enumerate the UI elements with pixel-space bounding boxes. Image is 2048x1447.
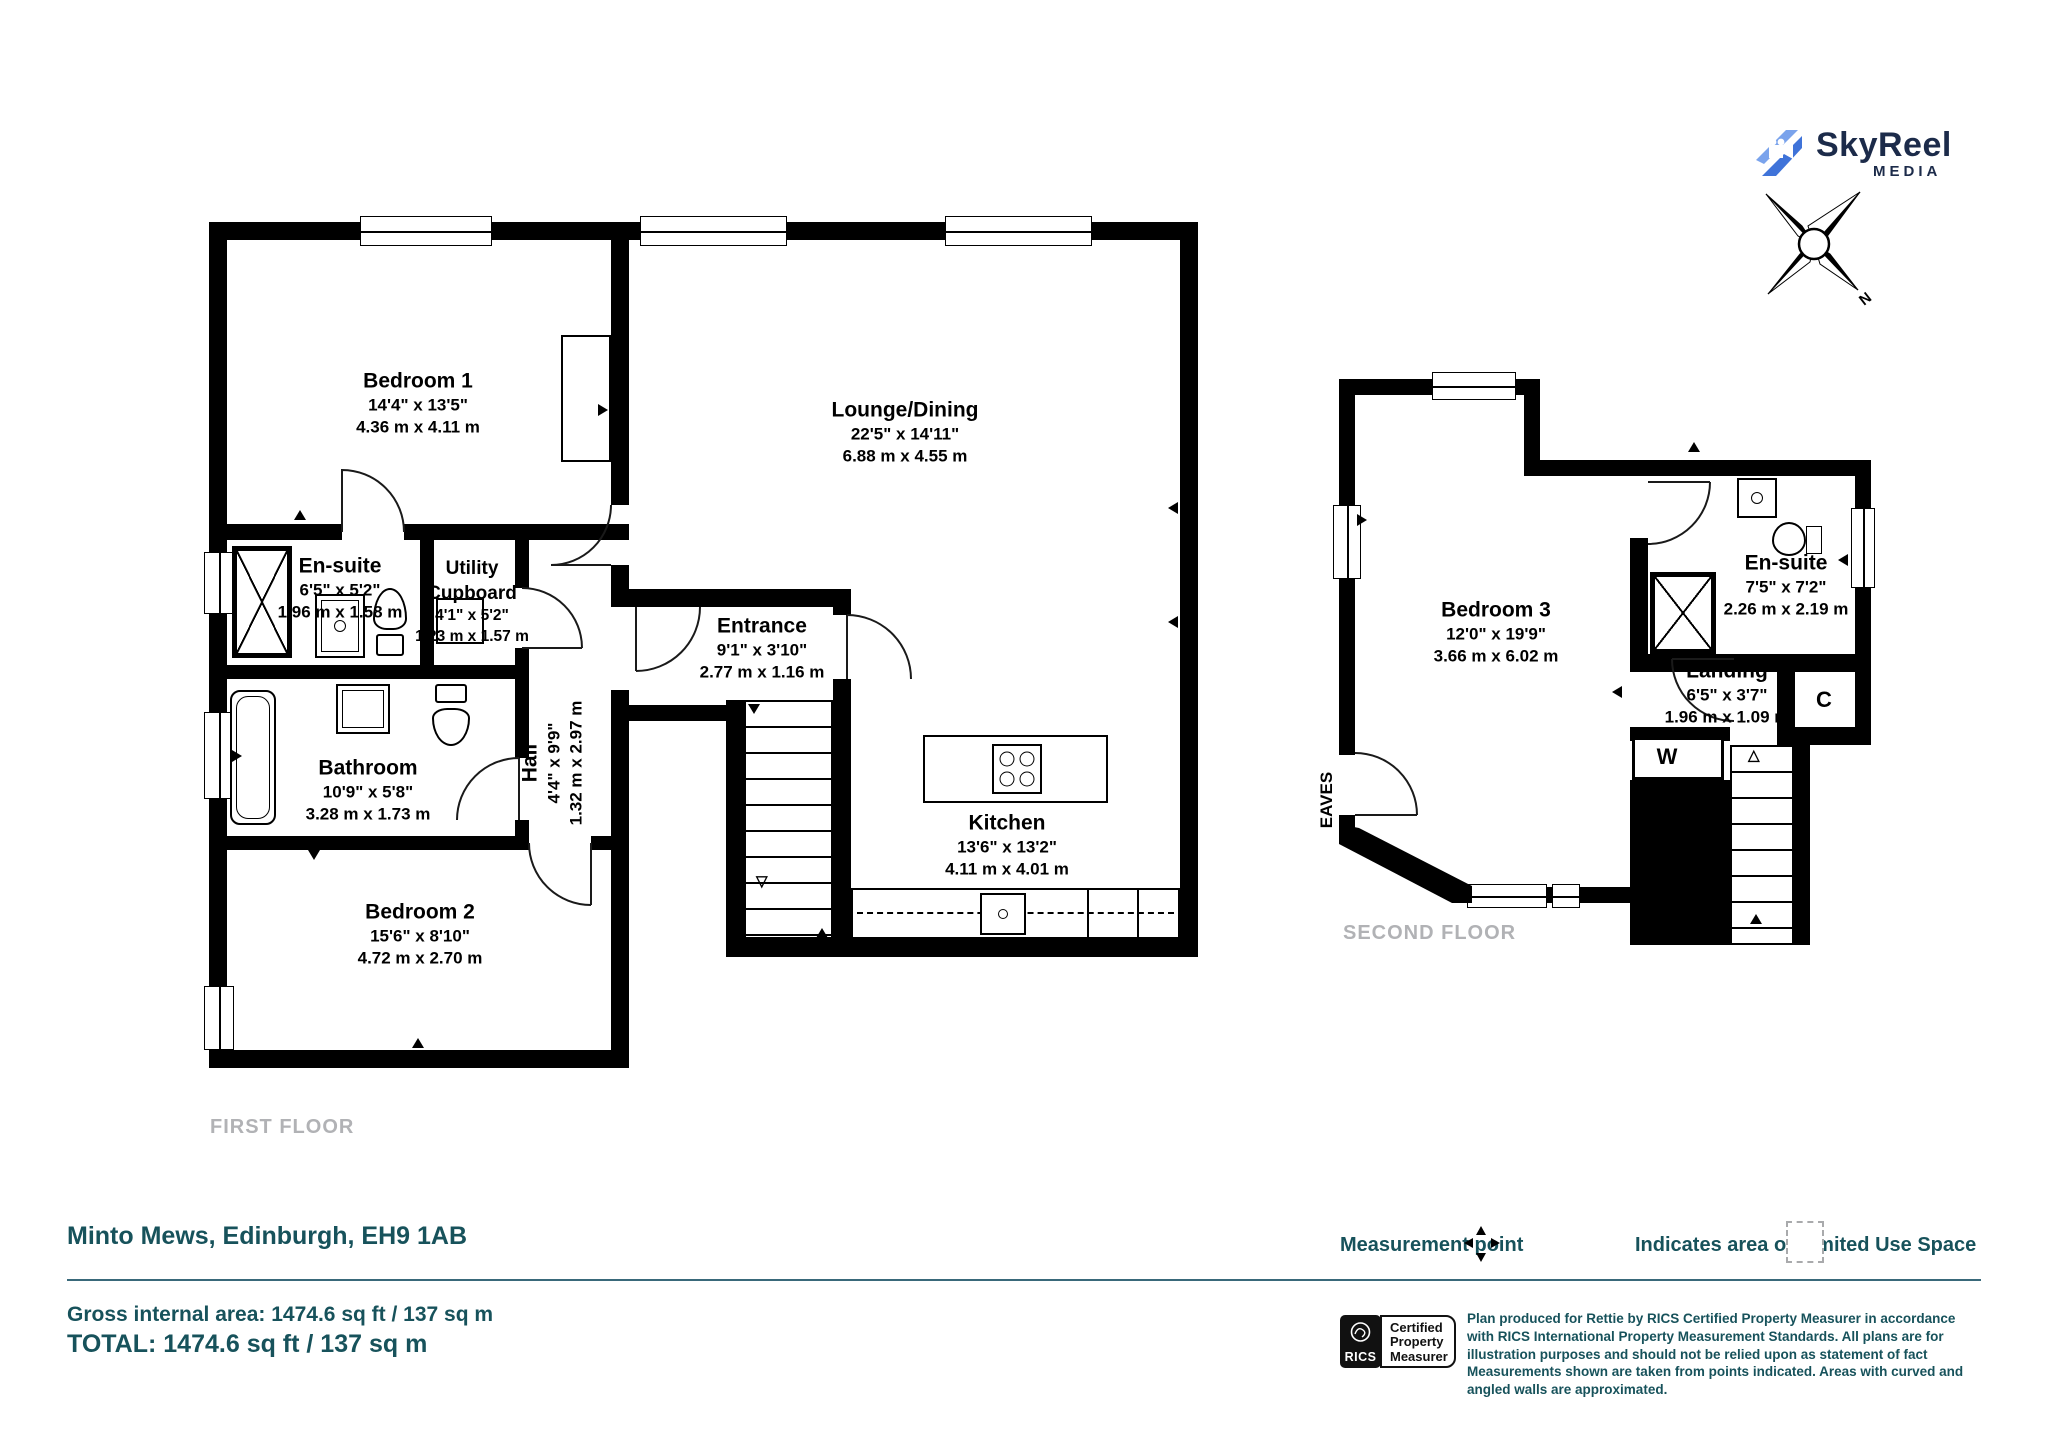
room-dim-imperial: 4'1" x 5'2" xyxy=(415,607,529,627)
room-label-hall: Hall 4'4" x 9'9" 1.32 m x 2.97 m xyxy=(516,701,587,826)
room-dim-imperial: 12'0" x 19'9" xyxy=(1434,624,1559,646)
wall xyxy=(591,836,629,850)
room-label-bedroom1: Bedroom 1 14'4" x 13'5" 4.36 m x 4.11 m xyxy=(356,367,480,438)
room-dim-metric: 1.23 m x 1.57 m xyxy=(415,627,529,647)
wall xyxy=(833,589,851,615)
wall xyxy=(1339,815,1355,838)
measurement-arrow xyxy=(816,928,828,938)
window xyxy=(1552,884,1580,908)
room-label-bedroom2: Bedroom 2 15'6" x 8'10" 4.72 m x 2.70 m xyxy=(358,898,483,969)
wall xyxy=(611,565,629,607)
measurement-arrow xyxy=(1168,502,1178,514)
stairs-direction-marker: ▽ xyxy=(756,872,768,890)
wall xyxy=(726,700,744,939)
wall xyxy=(515,648,529,665)
room-label-bedroom3: Bedroom 3 12'0" x 19'9" 3.66 m x 6.02 m xyxy=(1434,596,1559,667)
logo-title: SkyReel xyxy=(1816,126,1952,165)
measurement-arrow xyxy=(1750,914,1762,924)
room-name: En-suite xyxy=(1724,549,1849,576)
toilet-icon xyxy=(430,684,472,746)
room-dim-imperial: 15'6" x 8'10" xyxy=(358,926,483,948)
room-dim-imperial: 6'5" x 5'2" xyxy=(278,580,403,602)
property-address: Minto Mews, Edinburgh, EH9 1AB xyxy=(67,1222,467,1251)
sink-icon xyxy=(1737,478,1777,518)
room-dim-imperial: 10'9" x 5'8" xyxy=(306,782,431,804)
certified-property-measurer-badge: Certified Property Measurer xyxy=(1380,1315,1456,1368)
compass-north-label: N xyxy=(1856,289,1875,309)
wall xyxy=(611,240,629,505)
measurement-arrow xyxy=(748,704,760,714)
measurement-arrow xyxy=(232,750,242,762)
room-dim-imperial: 4'4" x 9'9" xyxy=(544,701,566,826)
footer-divider xyxy=(67,1279,1981,1281)
stairs-direction-marker: △ xyxy=(1748,746,1760,764)
room-dim-metric: 1.96 m x 1.58 m xyxy=(278,602,403,624)
gross-internal-area: Gross internal area: 1474.6 sq ft / 137 … xyxy=(67,1303,493,1327)
disclaimer-text: Plan produced for Rettie by RICS Certifi… xyxy=(1467,1310,1982,1399)
measurement-arrow xyxy=(412,1038,424,1048)
first-floor-label: FIRST FLOOR xyxy=(210,1116,354,1139)
room-dim-metric: 2.77 m x 1.16 m xyxy=(700,662,825,684)
room-name: En-suite xyxy=(278,552,403,579)
wall xyxy=(1630,538,1648,672)
room-name: Utility xyxy=(415,557,529,582)
four-way-arrows-icon xyxy=(1468,1224,1496,1264)
room-name: Bedroom 2 xyxy=(358,898,483,925)
window xyxy=(204,986,234,1050)
room-name: Bedroom 3 xyxy=(1434,596,1559,623)
kitchen-counter xyxy=(851,888,1180,939)
wall xyxy=(227,836,529,850)
dashed-square-swatch xyxy=(1786,1221,1824,1263)
room-dim-imperial: 6'5" x 3'7" xyxy=(1665,685,1790,707)
room-name: Kitchen xyxy=(945,809,1069,836)
room-dim-metric: 1.96 m x 1.09 m xyxy=(1665,707,1790,729)
kitchen-island xyxy=(923,735,1108,803)
cert-line: Property xyxy=(1390,1335,1454,1349)
room-label-bathroom: Bathroom 10'9" x 5'8" 3.28 m x 1.73 m xyxy=(306,754,431,825)
wall xyxy=(1180,222,1198,957)
room-label-lounge: Lounge/Dining 22'5" x 14'11" 6.88 m x 4.… xyxy=(832,396,979,467)
wardrobe-unit xyxy=(561,335,611,462)
room-dim-imperial: 9'1" x 3'10" xyxy=(700,640,825,662)
room-name: Hall xyxy=(516,701,543,826)
eaves-label: EAVES xyxy=(1316,772,1338,828)
window xyxy=(204,552,234,614)
hob-icon xyxy=(992,744,1042,794)
room-dim-metric: 2.26 m x 2.19 m xyxy=(1724,599,1849,621)
wall xyxy=(1630,780,1730,945)
room-dim-metric: 4.72 m x 2.70 m xyxy=(358,948,483,970)
floorplan-page: SkyReel MEDIA N xyxy=(0,0,2048,1447)
wall xyxy=(629,705,744,721)
room-name: Landing xyxy=(1665,657,1790,684)
room-dim-metric: 4.36 m x 4.11 m xyxy=(356,417,480,439)
room-label-kitchen: Kitchen 13'6" x 13'2" 4.11 m x 4.01 m xyxy=(945,809,1069,880)
room-name: Entrance xyxy=(700,612,825,639)
compass-rose-icon: N xyxy=(1742,182,1892,312)
room-dim-imperial: 14'4" x 13'5" xyxy=(356,395,480,417)
window xyxy=(1851,508,1875,588)
measurement-arrow xyxy=(1168,616,1178,628)
measurement-arrow xyxy=(598,404,608,416)
room-dim-metric: 3.66 m x 6.02 m xyxy=(1434,646,1559,668)
wardrobe-label: W xyxy=(1657,744,1678,770)
kitchen-sink-icon xyxy=(980,893,1026,935)
sink-icon xyxy=(336,684,390,734)
window xyxy=(1432,372,1516,400)
room-label-ensuite-2f: En-suite 7'5" x 7'2" 2.26 m x 2.19 m xyxy=(1724,549,1849,620)
cupboard-label: C xyxy=(1816,687,1832,713)
window xyxy=(1467,884,1547,908)
window xyxy=(945,216,1092,246)
staircase xyxy=(744,700,833,939)
room-dim-metric: 3.28 m x 1.73 m xyxy=(306,804,431,826)
room-name: Cupboard xyxy=(415,582,529,607)
wall xyxy=(611,690,629,836)
wall xyxy=(1777,727,1871,745)
room-dim-metric: 1.32 m x 2.97 m xyxy=(566,701,588,826)
wall xyxy=(209,222,227,1068)
window xyxy=(360,216,492,246)
wall xyxy=(1524,460,1871,476)
wall xyxy=(227,524,342,540)
wall xyxy=(611,850,629,1068)
room-name: Bathroom xyxy=(306,754,431,781)
cert-line: Measurer xyxy=(1390,1350,1454,1364)
rics-lion-icon: RICS xyxy=(1340,1315,1381,1368)
counter-divider xyxy=(1137,890,1139,937)
room-label-utility: Utility Cupboard 4'1" x 5'2" 1.23 m x 1.… xyxy=(415,557,529,647)
room-name: Bedroom 1 xyxy=(356,367,480,394)
wardrobe-unit xyxy=(1632,737,1724,780)
staircase xyxy=(1730,745,1794,945)
room-name: Lounge/Dining xyxy=(832,396,979,423)
wall xyxy=(1794,745,1810,945)
second-floor-label: SECOND FLOOR xyxy=(1343,922,1516,945)
room-dim-metric: 4.11 m x 4.01 m xyxy=(945,859,1069,881)
room-label-ensuite-1f: En-suite 6'5" x 5'2" 1.96 m x 1.58 m xyxy=(278,552,403,623)
measurement-arrow xyxy=(1357,514,1367,526)
measurement-arrow xyxy=(766,592,778,602)
skyreel-camera-icon xyxy=(1750,124,1808,182)
cert-line: Certified xyxy=(1390,1321,1454,1335)
window xyxy=(640,216,787,246)
measurement-arrow xyxy=(294,510,306,520)
room-label-landing: Landing 6'5" x 3'7" 1.96 m x 1.09 m xyxy=(1665,657,1790,728)
logo-subtitle: MEDIA xyxy=(1873,163,1941,180)
room-dim-imperial: 7'5" x 7'2" xyxy=(1724,577,1849,599)
wall xyxy=(209,1050,629,1068)
total-area: TOTAL: 1474.6 sq ft / 137 sq m xyxy=(67,1330,427,1359)
svg-text:RICS: RICS xyxy=(1345,1350,1377,1364)
wall xyxy=(833,679,851,939)
measurement-arrow xyxy=(1612,686,1622,698)
wall xyxy=(726,939,1198,957)
measurement-arrow xyxy=(1688,442,1700,452)
room-dim-imperial: 22'5" x 14'11" xyxy=(832,424,979,446)
room-dim-metric: 6.88 m x 4.55 m xyxy=(832,446,979,468)
counter-divider xyxy=(1087,890,1089,937)
wall xyxy=(227,665,529,679)
measurement-arrow xyxy=(308,850,320,860)
wall xyxy=(404,524,629,540)
shower-icon xyxy=(1650,572,1716,654)
room-label-entrance: Entrance 9'1" x 3'10" 2.77 m x 1.16 m xyxy=(700,612,825,683)
room-dim-imperial: 13'6" x 13'2" xyxy=(945,837,1069,859)
wall xyxy=(1855,460,1871,745)
wall xyxy=(629,589,851,607)
